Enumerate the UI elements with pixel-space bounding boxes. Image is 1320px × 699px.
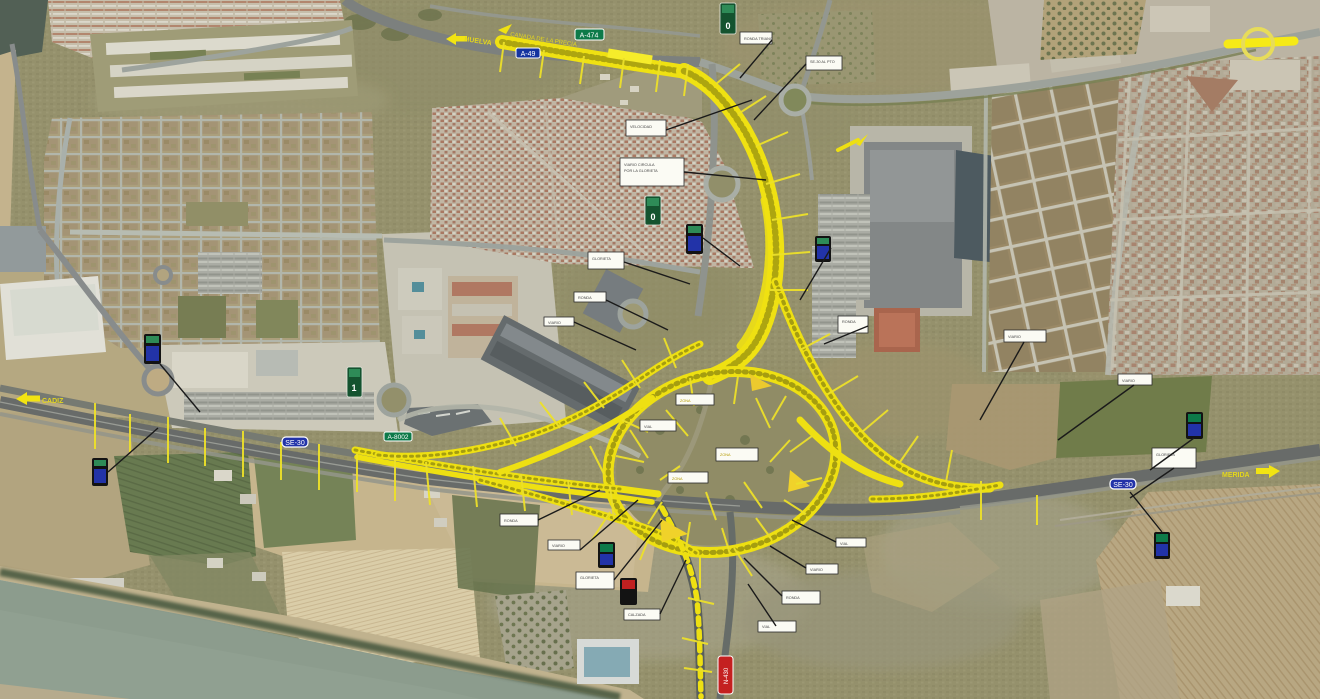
svg-text:VIAL: VIAL <box>840 542 848 546</box>
svg-text:CADIZ: CADIZ <box>42 398 64 405</box>
svg-text:GLORIETA: GLORIETA <box>592 257 611 261</box>
svg-text:VIARIO: VIARIO <box>548 321 561 325</box>
svg-text:A-8002: A-8002 <box>388 434 409 441</box>
svg-text:RONDA: RONDA <box>504 519 518 523</box>
svg-text:SE-30 AL PTO: SE-30 AL PTO <box>810 60 835 64</box>
svg-text:VIARIO CIRCULA: VIARIO CIRCULA <box>624 163 655 167</box>
svg-text:RONDA: RONDA <box>842 320 856 324</box>
svg-text:0: 0 <box>725 21 730 31</box>
svg-text:A-49: A-49 <box>521 51 536 58</box>
svg-text:VIAL: VIAL <box>762 625 770 629</box>
svg-text:SE-30: SE-30 <box>285 440 305 447</box>
svg-text:VIARIO: VIARIO <box>552 544 565 548</box>
svg-text:N-430: N-430 <box>724 667 730 684</box>
svg-text:GLORIETA: GLORIETA <box>580 576 599 580</box>
svg-text:VIARIO: VIARIO <box>1008 335 1021 339</box>
svg-text:POR LA GLORIETA: POR LA GLORIETA <box>624 169 658 173</box>
svg-text:SE-30: SE-30 <box>1113 482 1133 489</box>
svg-text:ZONA: ZONA <box>680 399 691 403</box>
svg-text:ZONA: ZONA <box>720 453 731 457</box>
svg-text:RONDA: RONDA <box>786 596 800 600</box>
svg-text:RONDA: RONDA <box>578 296 592 300</box>
svg-text:0: 0 <box>650 212 655 222</box>
svg-text:A-474: A-474 <box>580 33 599 40</box>
svg-text:VIARIO: VIARIO <box>1122 379 1135 383</box>
svg-text:VIAL: VIAL <box>644 425 652 429</box>
svg-text:CALZADA: CALZADA <box>628 613 646 617</box>
svg-text:VELOCIDAD: VELOCIDAD <box>630 125 652 129</box>
svg-text:ZONA: ZONA <box>672 477 683 481</box>
svg-text:1: 1 <box>351 383 356 393</box>
svg-text:RONDA TRIANG: RONDA TRIANG <box>744 37 773 41</box>
svg-text:MERIDA: MERIDA <box>1222 472 1250 479</box>
svg-text:VIARIO: VIARIO <box>810 568 823 572</box>
